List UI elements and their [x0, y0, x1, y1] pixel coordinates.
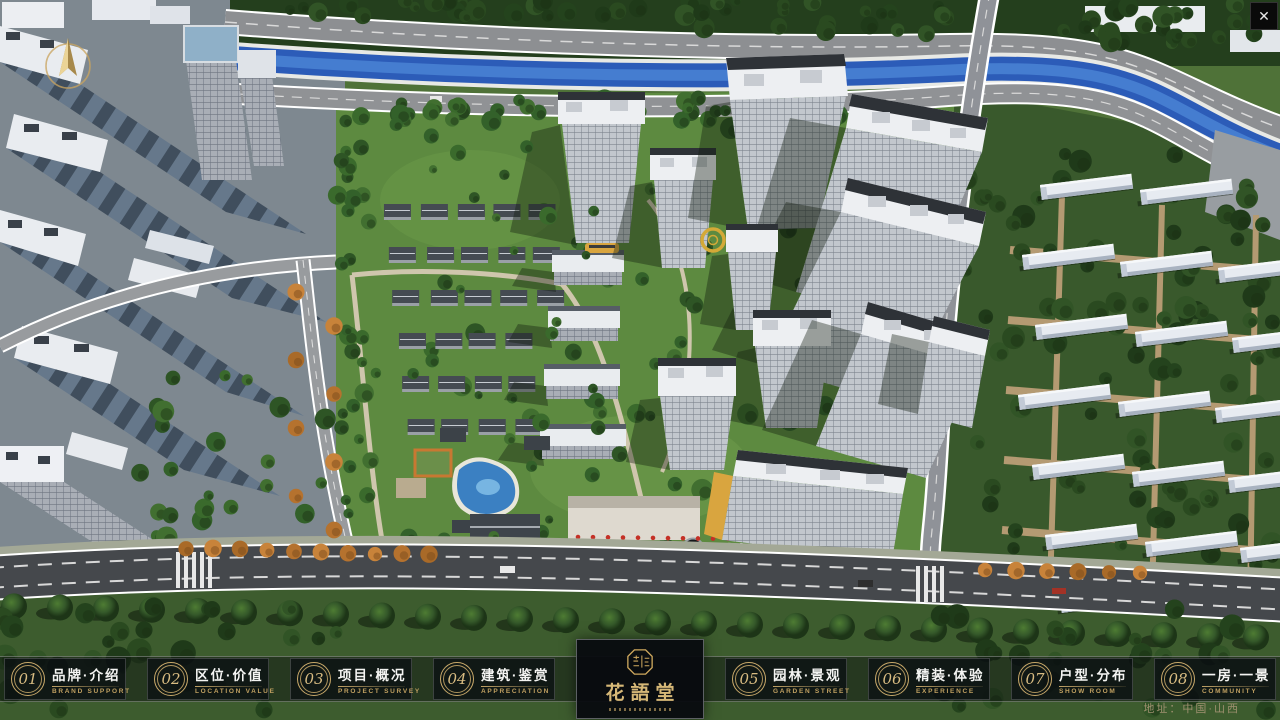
number-badge: 02: [154, 662, 188, 696]
project-address: 地址：中国·山西: [1143, 700, 1240, 716]
nav-subtitle: EXPERIENCE: [916, 688, 983, 695]
gold-divider: [773, 686, 840, 687]
logo-name: 花語堂: [599, 678, 680, 705]
nav-title: 精装·体验: [916, 664, 983, 684]
number-badge: 01: [11, 662, 45, 696]
gold-divider: [481, 686, 548, 687]
compass-north-icon[interactable]: [38, 32, 98, 94]
nav-item-views[interactable]: 08 一房·一景 COMMUNITY: [1154, 658, 1276, 700]
number-badge: 07: [1018, 662, 1052, 696]
number-badge: 06: [875, 662, 909, 696]
nav-title: 区位·价值: [195, 664, 262, 684]
sales-app-window: ✕ 01 品牌·介绍 BRAND SUPPORT 02 区位·价值 LOCATI…: [0, 0, 1280, 720]
nav-title: 一房·一景: [1202, 664, 1269, 684]
site-map-3d-view[interactable]: [0, 0, 1280, 720]
nav-item-location[interactable]: 02 区位·价值 LOCATION VALUE: [147, 658, 269, 700]
nav-subtitle: COMMUNITY: [1202, 688, 1269, 695]
nav-item-architecture[interactable]: 04 建筑·鉴赏 APPRECIATION: [433, 658, 555, 700]
nav-subtitle: GARDEN STREET: [773, 688, 840, 695]
seal-emblem-icon: [626, 648, 654, 676]
bottom-nav-bar: 01 品牌·介绍 BRAND SUPPORT 02 区位·价值 LOCATION…: [0, 656, 1280, 702]
logo-tagline: [609, 708, 671, 711]
gold-divider: [916, 686, 983, 687]
nav-subtitle: APPRECIATION: [481, 688, 548, 695]
nav-title: 项目·概况: [338, 664, 405, 684]
gold-divider: [1059, 686, 1126, 687]
nav-item-interior[interactable]: 06 精装·体验 EXPERIENCE: [868, 658, 990, 700]
nav-title: 户型·分布: [1059, 664, 1126, 684]
number-badge: 04: [440, 662, 474, 696]
gold-divider: [1202, 686, 1269, 687]
nav-subtitle: LOCATION VALUE: [195, 688, 262, 695]
gold-divider: [52, 686, 119, 687]
nav-title: 品牌·介绍: [52, 664, 119, 684]
number-badge: 08: [1161, 662, 1195, 696]
close-button[interactable]: ✕: [1250, 2, 1278, 30]
number-badge: 03: [297, 662, 331, 696]
nav-item-project[interactable]: 03 项目·概况 PROJECT SURVEY: [290, 658, 412, 700]
gold-divider: [338, 686, 405, 687]
gold-divider: [195, 686, 262, 687]
nav-subtitle: SHOW ROOM: [1059, 688, 1126, 695]
number-badge: 05: [732, 662, 766, 696]
project-logo[interactable]: 花語堂: [576, 639, 704, 719]
nav-title: 园林·景观: [773, 664, 840, 684]
nav-subtitle: PROJECT SURVEY: [338, 688, 405, 695]
nav-item-brand[interactable]: 01 品牌·介绍 BRAND SUPPORT: [4, 658, 126, 700]
nav-subtitle: BRAND SUPPORT: [52, 688, 119, 695]
nav-title: 建筑·鉴赏: [481, 664, 548, 684]
nav-item-floorplan[interactable]: 07 户型·分布 SHOW ROOM: [1011, 658, 1133, 700]
nav-item-garden[interactable]: 05 园林·景观 GARDEN STREET: [725, 658, 847, 700]
